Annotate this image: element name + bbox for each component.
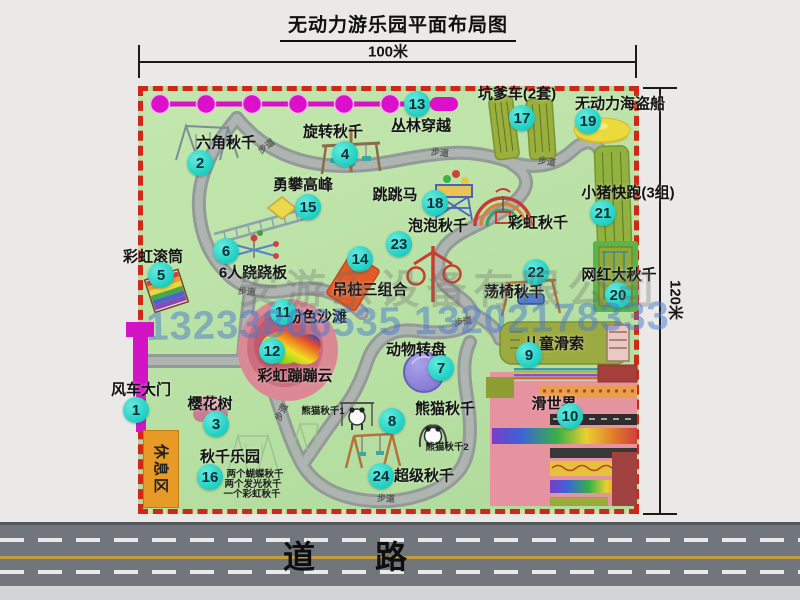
- dimension-tick-top: [643, 87, 677, 89]
- road: 道 路: [0, 522, 800, 589]
- dimension-tick-left: [138, 45, 140, 78]
- rest-area-label: 休息区: [151, 443, 172, 494]
- dimension-label-height: 120米: [666, 280, 687, 320]
- park-area: [138, 86, 639, 514]
- road-curb: [0, 586, 800, 600]
- rest-area: 休息区: [143, 430, 179, 508]
- road-label: 道 路: [283, 532, 421, 578]
- dimension-line-right: [659, 88, 661, 515]
- dimension-tick-right: [635, 45, 637, 78]
- dimension-label-width: 100米: [368, 41, 408, 62]
- page-title: 无动力游乐园平面布局图: [280, 10, 516, 42]
- park-plan-screenshot: 无动力游乐园平面布局图 100米 120米: [0, 0, 800, 600]
- dimension-tick-bottom: [643, 513, 677, 515]
